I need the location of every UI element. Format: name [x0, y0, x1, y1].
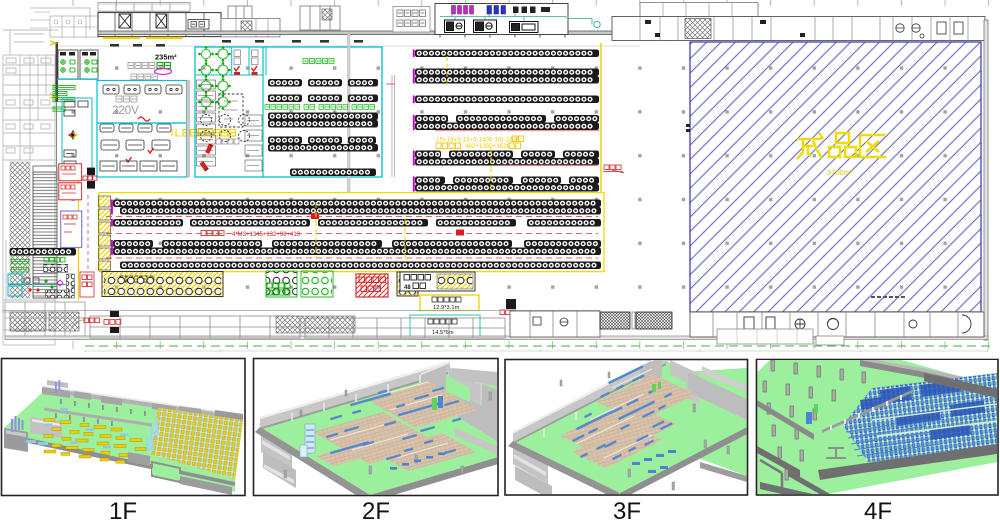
- svg-text:4F: 4F: [864, 498, 892, 525]
- svg-text:482+1350+1626: 482+1350+1626: [465, 143, 511, 150]
- svg-text:14.5*6m: 14.5*6m: [432, 330, 454, 336]
- svg-text:1F: 1F: [109, 498, 137, 525]
- svg-text:235m²: 235m²: [155, 53, 177, 62]
- svg-text:4*M3+1345+132+98+413: 4*M3+1345+132+98+413: [232, 232, 301, 238]
- svg-text:2F: 2F: [362, 498, 390, 525]
- svg-text:220V: 220V: [112, 105, 139, 117]
- svg-text:3700m²: 3700m²: [827, 168, 853, 177]
- svg-text:3F: 3F: [613, 498, 641, 525]
- svg-text:48: 48: [404, 285, 411, 291]
